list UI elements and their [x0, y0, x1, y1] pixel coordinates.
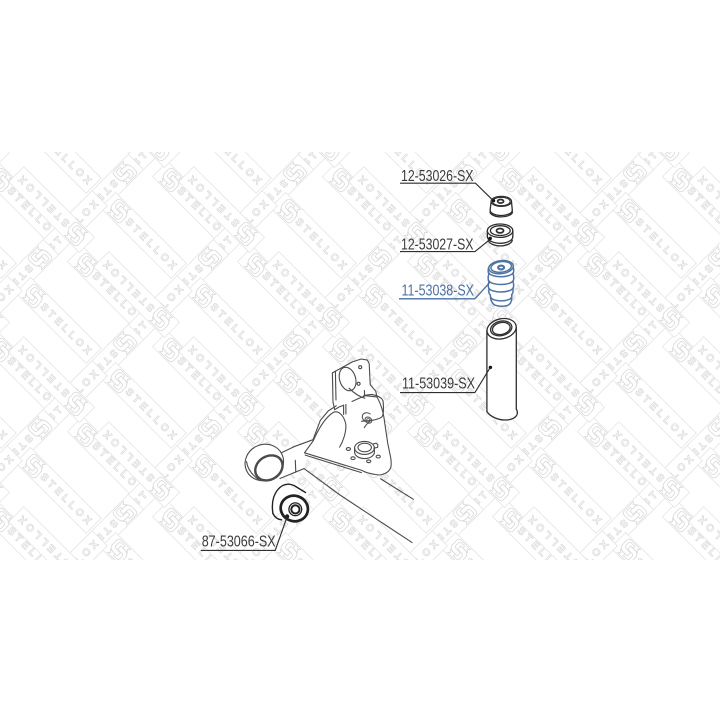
- svg-text:12-53027-SX: 12-53027-SX: [401, 237, 474, 254]
- svg-text:11-53038-SX: 11-53038-SX: [402, 283, 475, 300]
- svg-text:12-53026-SX: 12-53026-SX: [401, 168, 474, 185]
- svg-text:11-53039-SX: 11-53039-SX: [402, 376, 475, 393]
- svg-text:87-53066-SX: 87-53066-SX: [202, 534, 276, 551]
